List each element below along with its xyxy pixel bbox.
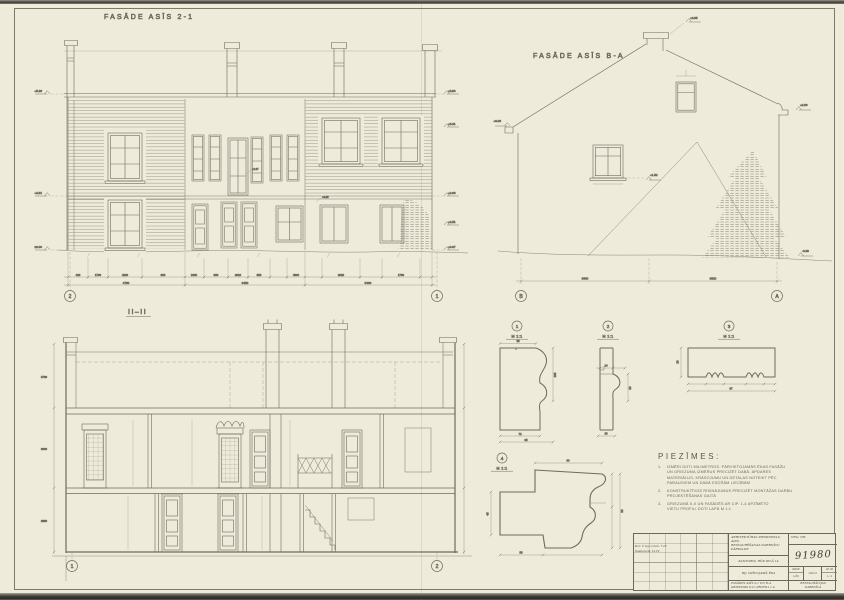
dim-label: 30 xyxy=(628,386,632,390)
door xyxy=(221,202,237,248)
tiled-stove-ornate xyxy=(216,422,244,489)
axis-label: 2 xyxy=(436,564,439,570)
dim-label: 6520 xyxy=(710,277,717,281)
dim-label: 3300 xyxy=(41,447,48,451)
facade-b-a-title: FASĀDE ASĪS B-A xyxy=(533,52,625,60)
titleblock-group-cell: GRUP LŪN xyxy=(788,567,803,581)
notes-heading: PIEZĪMES: xyxy=(658,452,836,461)
note-text: KONSTRUKTĪVOS RISINĀJUMUS PRECIZĒT MONTĀ… xyxy=(667,489,792,500)
door xyxy=(192,204,208,250)
window-narrow xyxy=(251,137,263,183)
detail-2: 2 M 1:1 14 30 26 xyxy=(596,321,632,437)
titleblock-object: KANTORIS, RŪP. IELĀ 14 xyxy=(728,556,788,567)
level-label: -0.38 xyxy=(802,249,809,253)
level-label: +6.85 xyxy=(690,16,698,20)
dim-label: 880 xyxy=(214,273,219,277)
titleblock-subject: BIJ. DZĪVOJAMĀ ĒKA xyxy=(728,567,788,581)
dim-label: 29 xyxy=(676,360,680,364)
titleblock-organization: ARHITEKTŪRAS PIEMINEKĻU AIZS. RESTAURĒŠA… xyxy=(728,534,788,556)
detail-1: 1 M 1:1 28 105 72 95 xyxy=(499,321,557,443)
facade-2-1-drawing: FASĀDE ASĪS 2-1 xyxy=(34,13,468,302)
window-narrow xyxy=(287,135,299,181)
facade-b-a-drawing: FASĀDE ASĪS B-A xyxy=(493,16,832,302)
titleblock-sheet-cell: LP. 20 L. 4 xyxy=(821,567,837,581)
detail-scale: M 1:1 xyxy=(512,335,523,339)
titleblock-negative-number: NEG. NR. xyxy=(788,534,837,545)
dim-label: 6450 xyxy=(242,281,249,285)
stair-balustrade xyxy=(298,454,332,488)
dim-label: 2780 xyxy=(41,375,48,379)
staircase xyxy=(305,505,335,550)
dim-label: 2400 xyxy=(191,273,198,277)
level-label: ±0.00 xyxy=(35,245,43,249)
level-label: +3.06 xyxy=(493,119,501,123)
dim-label: 45 xyxy=(486,512,490,516)
window-narrow xyxy=(209,135,221,181)
revision-entry: Kor. 2 lap. izlab. 7.IV xyxy=(635,544,667,548)
level-label: +2.51 xyxy=(448,220,456,224)
level-label: +5.80 xyxy=(448,89,456,93)
panel-door xyxy=(218,494,238,552)
dim-label: 880 xyxy=(161,273,166,277)
section-title: II–II xyxy=(128,309,147,316)
detail-number: 1 xyxy=(516,324,519,329)
dim-label: 72 xyxy=(518,432,522,436)
axis-label: 1 xyxy=(71,564,74,570)
detail-number: 4 xyxy=(501,456,504,461)
note-number: 3. xyxy=(658,502,664,513)
dim-label: 87 xyxy=(729,387,733,391)
dim-label: 14 xyxy=(604,363,608,367)
level-label: +2.80 xyxy=(800,103,808,107)
dim-label: 950 xyxy=(257,273,262,277)
level-label: +5.28 xyxy=(34,89,42,93)
dim-label: 3010 xyxy=(235,273,242,277)
dim-label: 3020 xyxy=(338,273,345,277)
notes-block: PIEZĪMES: 1. IZMĒRI DOTI MILIMETROS. PĀR… xyxy=(658,452,836,515)
note-item: 3. GRIEZUMĀ II-II UN FASĀDĒS AR CIP. 1-4… xyxy=(658,502,836,513)
section-linework xyxy=(52,320,472,582)
dim-label: 2850 xyxy=(41,519,48,523)
window xyxy=(276,206,303,242)
axis-label: 1 xyxy=(436,294,439,300)
detail-4: 4 M 1:1 90 45 58 80 xyxy=(486,453,625,556)
dim-label: 28 xyxy=(516,339,520,343)
dim-label: 410 xyxy=(76,273,81,277)
note-item: 1. IZMĒRI DOTI MILIMETROS. PĀRVIETOJAMĀS… xyxy=(658,465,836,486)
panel-door xyxy=(250,430,270,488)
drawing-sheet: FASĀDE ASĪS 2-1 xyxy=(0,0,844,600)
door xyxy=(241,202,257,248)
dim-label: 4780 xyxy=(123,281,130,285)
dim-label: 105 xyxy=(553,372,557,377)
revision-entry: Saskaņots 12.IV xyxy=(635,549,660,553)
titleblock-sheet-title: FASĀDES ASĪS 2-1 UN B-A GRIEZUMS II-II, … xyxy=(728,581,788,591)
dim-label: 4200 xyxy=(122,273,129,277)
facade-b-a-linework xyxy=(498,33,832,262)
dim-label: 90 xyxy=(566,459,570,463)
dim-label: 4800 xyxy=(293,273,300,277)
panel-door xyxy=(162,494,182,552)
note-text: GRIEZUMĀ II-II UN FASĀDĒS AR CIP. 1-4 AP… xyxy=(667,502,769,513)
dim-label: 95 xyxy=(524,438,528,442)
level-label: +2.51 xyxy=(34,191,42,195)
axis-label: 2 xyxy=(69,294,72,300)
note-number: 1. xyxy=(658,465,664,486)
detail-number: 2 xyxy=(607,324,610,329)
dim-label: 6880 xyxy=(582,277,589,281)
revision-table: Kor. 2 lap. izlab. 7.IV Saskaņots 12.IV xyxy=(634,534,728,591)
axis-label: B xyxy=(519,294,523,300)
stamp-number: 91980 xyxy=(794,548,831,563)
dim-label: 80 xyxy=(620,509,624,513)
dim-label: 26 xyxy=(604,432,608,436)
facade-2-1-dimensions xyxy=(64,252,437,290)
panel-door xyxy=(342,430,362,488)
dim-label: 1760 xyxy=(398,273,405,277)
titleblock-code-cell: 102-3 xyxy=(803,567,821,581)
level-label: +2.98 xyxy=(448,191,456,195)
detail-3-dims xyxy=(680,347,777,393)
window xyxy=(320,205,348,243)
level-callout: +2.37 xyxy=(252,167,259,171)
titleblock-stamp-cell: 91980 xyxy=(788,545,837,567)
window-narrow xyxy=(192,135,204,181)
attic-window xyxy=(676,70,696,112)
gable-window xyxy=(590,145,644,184)
dim-label: 58 xyxy=(519,550,523,554)
detail-3: 3 M 1:1 29 87 xyxy=(676,321,777,392)
title-block: Kor. 2 lap. izlab. 7.IV Saskaņots 12.IV … xyxy=(633,533,836,591)
note-item: 2. KONSTRUKTĪVOS RISINĀJUMUS PRECIZĒT MO… xyxy=(658,489,836,500)
section-dimensions xyxy=(53,343,466,560)
note-text: IZMĒRI DOTI MILIMETROS. PĀRVIETOJAMĀS ĒK… xyxy=(667,465,785,486)
level-label: +0.07 xyxy=(448,245,456,249)
level-label: +5.31 xyxy=(448,122,456,126)
tiled-stove xyxy=(82,424,108,488)
dim-label: 5480 xyxy=(365,281,372,285)
window-narrow xyxy=(270,135,282,181)
level-callout: +0.85 xyxy=(322,195,329,199)
facade-b-a-dimensions xyxy=(516,258,782,285)
dim-label: 1700 xyxy=(95,273,102,277)
section-ii-ii-drawing: II–II xyxy=(41,309,472,581)
detail-4-dims xyxy=(490,462,622,557)
level-label: +1.52 xyxy=(650,173,658,177)
detail-scale: M 1:1 xyxy=(603,335,614,339)
axis-label: A xyxy=(775,294,779,300)
note-number: 2. xyxy=(658,489,664,500)
titleblock-firm: RESTAURĀCIJAS DARBNĪCA xyxy=(788,581,837,591)
detail-scale: M 1:1 xyxy=(724,335,735,339)
detail-number: 3 xyxy=(728,324,731,329)
door-window xyxy=(228,138,248,195)
detail-scale: M 1:1 xyxy=(497,467,508,471)
facade-2-1-title: FASĀDE ASĪS 2-1 xyxy=(104,13,194,21)
